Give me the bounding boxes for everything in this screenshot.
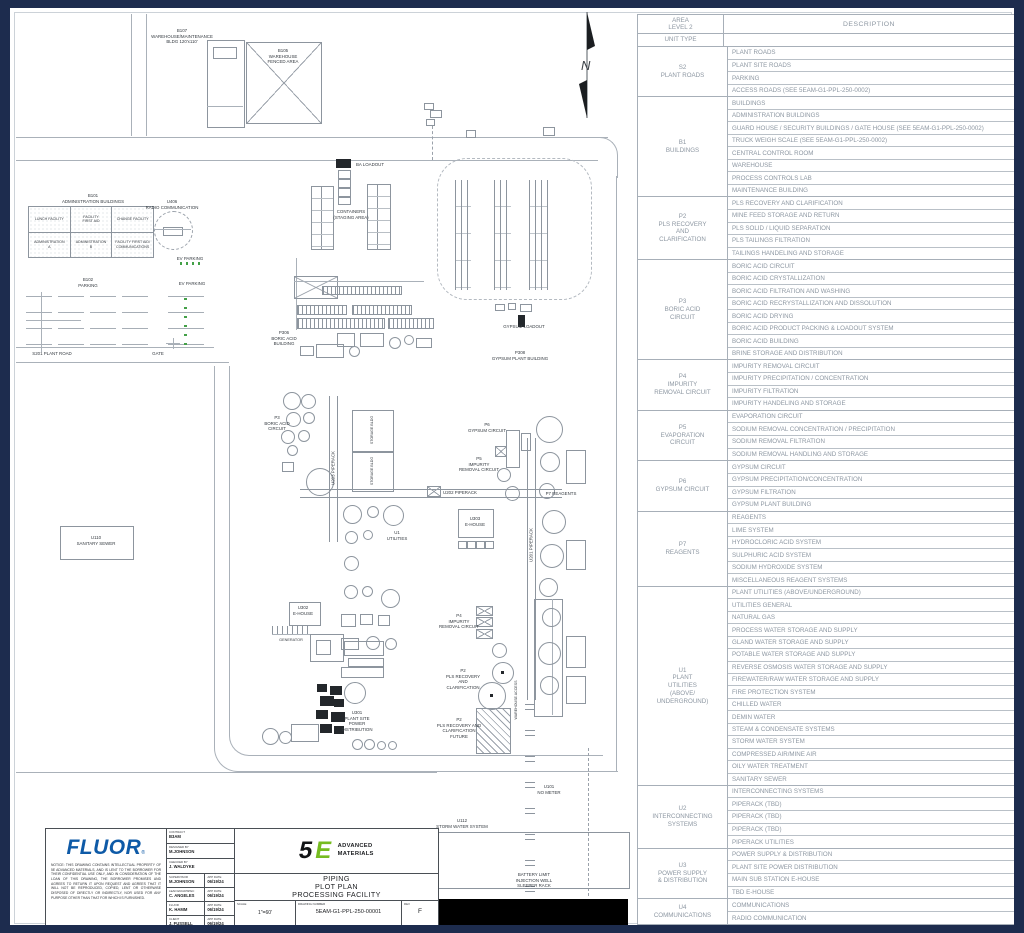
field-value: B3AM — [169, 834, 232, 839]
signoff-value: M.JOHNSON — [169, 879, 202, 884]
titleblock-field: DESIGNED BYM.JOHNSON — [167, 844, 234, 859]
legend-item-column: POWER SUPPLY & DISTRIBUTIONPLANT SITE PO… — [728, 849, 1014, 898]
tank-circle — [383, 505, 404, 526]
outline-box — [508, 303, 516, 310]
legend-group: U4 COMMUNICATIONSCOMMUNICATIONSRADIO COM… — [638, 899, 1014, 924]
signoff-name-cell: SUPERVISORM.JOHNSON — [167, 874, 204, 887]
line — [294, 281, 424, 282]
legend-description-row: GYPSUM CIRCUIT — [728, 461, 1014, 473]
tank-circle — [542, 510, 566, 534]
legend-description-row: MAIN SUB STATION E-HOUSE — [728, 873, 1014, 886]
outline-box — [316, 344, 344, 358]
outline-box — [282, 462, 294, 472]
legend-area-cell: P7 REAGENTS — [638, 512, 728, 586]
drawing-title: PIPING PLOT PLAN PROCESSING FACILITY — [235, 873, 438, 900]
outline-box — [338, 197, 351, 205]
tank-circle — [539, 483, 555, 499]
legend-description-row: PLANT SITE ROADS — [728, 59, 1014, 72]
line — [26, 320, 81, 321]
line — [173, 338, 174, 349]
company-name: ADVANCED MATERIALS — [338, 843, 374, 858]
legend-description-row: SULPHURIC ACID SYSTEM — [728, 548, 1014, 561]
line — [154, 229, 191, 230]
legend-description-row: OILY WATER TREATMENT — [728, 760, 1014, 772]
filled-block — [334, 726, 344, 734]
legend-group: S2 PLANT ROADSPLANT ROADSPLANT SITE ROAD… — [638, 47, 1014, 97]
outline-box — [430, 110, 442, 118]
outline-box — [348, 658, 384, 667]
legend-area-cell: S2 PLANT ROADS — [638, 47, 728, 96]
outline-box — [291, 724, 319, 742]
legend-description-row: TRUCK WEIGH SCALE (SEE 5EAM-G1-PPL-250-0… — [728, 134, 1014, 147]
legend-description-row: FIRE PROTECTION SYSTEM — [728, 685, 1014, 697]
tank-circle — [367, 506, 379, 518]
window-frame-left — [0, 0, 10, 933]
piperack-vertical — [329, 396, 338, 542]
legend-description-row: BORIC ACID BUILDING — [728, 334, 1014, 347]
legend-description-row: FIREWATER/RAW WATER STORAGE AND SUPPLY — [728, 673, 1014, 685]
legend-description-row: DEMIN WATER — [728, 710, 1014, 722]
tank-circle — [344, 682, 366, 704]
outline-box — [338, 188, 351, 197]
legend-group: U2 INTERCONNECTING SYSTEMSINTERCONNECTIN… — [638, 786, 1014, 849]
legend-description-row: IMPURITY HANDELING AND STORAGE — [728, 397, 1014, 410]
logo-5: 5 — [297, 837, 315, 865]
legend-area-cell: U3 POWER SUPPLY & DISTRIBUTION — [638, 849, 728, 898]
drawing-viewer-page: { "north_label": "N", "colors": { "frame… — [0, 0, 1024, 933]
legend-description-row: SODIUM REMOVAL FILTRATION — [728, 435, 1014, 448]
tank-circle — [377, 741, 386, 750]
outline-box — [341, 614, 356, 627]
legend-item-column: IMPURITY REMOVAL CIRCUITIMPURITY PRECIPI… — [728, 360, 1014, 409]
legend-item-column: PLS RECOVERY AND CLARIFICATIONMINE FEED … — [728, 197, 1014, 259]
legend-description-row: PROCESS CONTROLS LAB — [728, 171, 1014, 184]
legend-item-column: BUILDINGSADMINISTRATION BUILDINGSGUARD H… — [728, 97, 1014, 196]
tank-circle — [363, 530, 373, 540]
container-rack — [367, 184, 391, 250]
title-block-fluor-cell: FLUOR® NOTICE: THIS DRAWING CONTAINS INT… — [46, 829, 167, 929]
line — [16, 772, 437, 773]
outline-box — [378, 615, 390, 626]
rev-label: REV — [404, 902, 436, 906]
legend-description-row: PLANT SITE POWER DISTRIBUTION — [728, 860, 1014, 873]
signoff-value: C. ANGELES — [169, 893, 202, 898]
tank-circle — [542, 608, 561, 627]
legend-group: U1 PLANT UTILITIES (ABOVE/ UNDERGROUND)P… — [638, 587, 1014, 786]
equipment-strip — [388, 318, 434, 329]
legend-item-column: GYPSUM CIRCUITGYPSUM PRECIPITATION/CONCE… — [728, 461, 1014, 510]
outline-box — [543, 127, 555, 136]
legend-description-row: SODIUM HYDROXIDE SYSTEM — [728, 561, 1014, 574]
tank-circle — [497, 468, 511, 482]
legend-description-row: ADMINISTRATION BUILDINGS — [728, 109, 1014, 122]
rev-value: F — [404, 908, 436, 915]
legend-description-row: SODIUM REMOVAL HANDLING AND STORAGE — [728, 448, 1014, 461]
dashed-line — [432, 126, 434, 160]
outline-box — [495, 304, 505, 311]
scale-value: 1"=60' — [237, 910, 293, 916]
outline-box — [338, 170, 351, 179]
parking-stripes — [122, 296, 148, 348]
legend-description-row: TBD E-HOUSE — [728, 886, 1014, 899]
legend-description-row: GLAND WATER STORAGE AND SUPPLY — [728, 636, 1014, 648]
admin-room: ADMINISTRATION A — [29, 233, 70, 258]
tank-circle — [345, 531, 358, 544]
filled-block — [490, 694, 493, 697]
tank-circle — [388, 741, 397, 750]
legend-description-row: BRINE STORAGE AND DISTRIBUTION — [728, 347, 1014, 360]
legend-group: P5 EVAPORATION CIRCUITEVAPORATION CIRCUI… — [638, 411, 1014, 461]
container-rack — [311, 186, 334, 250]
tank-circle — [349, 346, 360, 357]
outline-box — [360, 333, 384, 347]
window-frame-bottom — [0, 925, 1024, 933]
outline-box — [300, 346, 314, 356]
legend-description-row: PLS RECOVERY AND CLARIFICATION — [728, 197, 1014, 209]
company-logo: 5E ADVANCED MATERIALS — [235, 829, 438, 873]
parking-stripes — [26, 296, 52, 348]
legend-area-cell: P4 IMPURITY REMOVAL CIRCUIT — [638, 360, 728, 409]
rail-loop-road — [437, 158, 592, 300]
legend-item-column: EVAPORATION CIRCUITSODIUM REMOVAL CONCEN… — [728, 411, 1014, 460]
legend-description-row: POWER SUPPLY & DISTRIBUTION — [728, 849, 1014, 861]
outline-box — [360, 614, 373, 625]
outline-box — [467, 541, 476, 549]
tank-circle — [281, 430, 295, 444]
outline-box — [485, 541, 494, 549]
legend-description-row: GYPSUM PRECIPITATION/CONCENTRATION — [728, 473, 1014, 486]
legend-description-row: BUILDINGS — [728, 97, 1014, 109]
legend-description-row: REAGENTS — [728, 512, 1014, 524]
tank-circle — [539, 578, 558, 597]
legend-description-row: ACCESS ROADS (SEE 5EAM-G1-PPL-250-0002) — [728, 84, 1014, 97]
legend-group: P3 BORIC ACID CIRCUITBORIC ACID CIRCUITB… — [638, 260, 1014, 360]
legend-item-column: PLANT ROADSPLANT SITE ROADSPARKINGACCESS… — [728, 47, 1014, 96]
tank-circle — [540, 452, 560, 472]
window-frame-top — [0, 0, 1024, 8]
legend-description-row: IMPURITY FILTRATION — [728, 385, 1014, 398]
legend-header-unit-type: UNIT TYPE — [638, 34, 724, 46]
legend-description-row: BORIC ACID PRODUCT PACKING & LOADOUT SYS… — [728, 322, 1014, 335]
legend-description-row: EVAPORATION CIRCUIT — [728, 411, 1014, 423]
legend-area-cell: P6 GYPSUM CIRCUIT — [638, 461, 728, 510]
outline-box — [60, 526, 134, 560]
filled-block — [501, 671, 504, 674]
legend-header-description: DESCRIPTION — [724, 15, 1014, 33]
signoff-value: K. HAMM — [169, 907, 202, 912]
outline-box — [344, 641, 384, 656]
road-curve — [598, 137, 618, 178]
legend-description-row: SODIUM REMOVAL CONCENTRATION / PRECIPITA… — [728, 422, 1014, 435]
titleblock-signoff: LEAD ENGR/SPECC. ANGELESAPP DATE06/19/24 — [167, 888, 234, 902]
legend-description-row: UTILITIES GENERAL — [728, 598, 1014, 610]
legend-item-column: REAGENTSLIME SYSTEMHYDROCLORIC ACID SYST… — [728, 512, 1014, 586]
tank-circle — [283, 392, 301, 410]
tank-circle — [343, 505, 362, 524]
legend-description-row: PLANT ROADS — [728, 47, 1014, 59]
outline-box — [506, 430, 520, 468]
equipment-strip — [297, 305, 347, 315]
equipment-strip — [322, 286, 402, 295]
legend-description-row: CENTRAL CONTROL ROOM — [728, 146, 1014, 159]
legend-description-row: COMPRESSED AIR/MINE AIR — [728, 748, 1014, 760]
date-value: 06/19/24 — [207, 907, 232, 912]
outline-box — [458, 509, 494, 538]
field-value: M.JOHNSON — [169, 849, 232, 854]
legend-area-cell: U2 INTERCONNECTING SYSTEMS — [638, 786, 728, 848]
legend-description-row: NATURAL GAS — [728, 611, 1014, 623]
title-block-center: 5E ADVANCED MATERIALS PIPING PLOT PLAN P… — [235, 829, 438, 929]
field-value: J. WALDYKE — [169, 864, 232, 869]
legend-description-row: BORIC ACID CIRCUIT — [728, 260, 1014, 272]
admin-room: ADMINISTRATION B — [70, 233, 112, 258]
outline-box — [289, 602, 321, 626]
legend-header-empty — [724, 34, 1014, 46]
legend-group: P6 GYPSUM CIRCUITGYPSUM CIRCUITGYPSUM PR… — [638, 461, 1014, 511]
tank-circle — [262, 728, 279, 745]
filled-block — [518, 315, 525, 327]
legend-description-row: PLS SOLID / LIQUID SEPARATION — [728, 222, 1014, 235]
line — [131, 14, 132, 136]
ev-parking-ticks — [184, 298, 187, 348]
outline-box — [213, 47, 237, 59]
crossed-box — [476, 617, 493, 627]
date-value: 06/19/24 — [207, 893, 232, 898]
legend-description-row: GUARD HOUSE / SECURITY BUILDINGS / GATE … — [728, 121, 1014, 134]
filled-block — [316, 710, 328, 719]
outline-box — [566, 540, 586, 570]
equipment-strip — [297, 318, 385, 329]
drawing-number-label: DRAWING NUMBER — [298, 902, 399, 906]
outline-box — [426, 119, 435, 126]
admin-room: LUNCH FACILITY — [29, 207, 70, 232]
filled-block — [336, 159, 351, 168]
outline-box — [521, 433, 531, 451]
outline-box — [338, 179, 351, 188]
legend-description-row: PLS TAILINGS FILTRATION — [728, 234, 1014, 247]
area-legend-table: AREA LEVEL 2 DESCRIPTION UNIT TYPE S2 PL… — [637, 14, 1015, 925]
legend-description-row: POTABLE WATER STORAGE AND SUPPLY — [728, 648, 1014, 660]
legend-item-column: BORIC ACID CIRCUITBORIC ACID CRYSTALLIZA… — [728, 260, 1014, 359]
tank-circle — [352, 739, 363, 750]
tank-circle — [344, 585, 358, 599]
legend-area-cell: P5 EVAPORATION CIRCUIT — [638, 411, 728, 460]
admin-room: CHANGE FACILITY — [111, 207, 153, 232]
parking-stripes — [58, 296, 84, 348]
legend-description-row: PIPERACK (TBD) — [728, 823, 1014, 836]
ev-parking-ticks — [180, 262, 204, 265]
line — [146, 14, 147, 136]
tank-circle — [492, 643, 507, 658]
line — [272, 634, 312, 635]
tank-circle — [364, 739, 375, 750]
legend-description-row: INTERCONNECTING SYSTEMS — [728, 786, 1014, 798]
tank-circle — [404, 335, 414, 345]
legend-header-row: AREA LEVEL 2 DESCRIPTION — [638, 15, 1014, 34]
crossed-box — [476, 629, 493, 639]
outline-box — [466, 130, 476, 138]
signoff-date-cell: APP DATE06/19/24 — [204, 902, 234, 915]
scale-label: SCALE — [237, 902, 293, 906]
legend-area-cell: U4 COMMUNICATIONS — [638, 899, 728, 924]
outline-box — [566, 450, 586, 484]
legend-item-column: COMMUNICATIONSRADIO COMMUNICATION — [728, 899, 1014, 924]
tank-circle — [362, 586, 373, 597]
filled-block — [320, 724, 332, 733]
window-frame-right — [1014, 0, 1024, 933]
tank-circle — [306, 468, 334, 496]
legend-groups: S2 PLANT ROADSPLANT ROADSPLANT SITE ROAD… — [638, 47, 1014, 924]
signoff-date-cell: APP DATE06/19/24 — [204, 888, 234, 901]
legend-area-cell: P2 PLS RECOVERY AND CLARIFICATION — [638, 197, 728, 259]
outline-box — [438, 832, 630, 889]
legend-description-row: WAREHOUSE — [728, 159, 1014, 172]
legend-header-area: AREA LEVEL 2 — [638, 15, 724, 33]
titleblock-signoff: FLUORK. HAMMAPP DATE06/19/24 — [167, 902, 234, 916]
outline-box — [352, 410, 394, 452]
legend-item-column: INTERCONNECTING SYSTEMSPIPERACK (TBD)PIP… — [728, 786, 1014, 848]
tank-circle — [540, 676, 559, 695]
legend-description-row: LIME SYSTEM — [728, 523, 1014, 536]
crossed-box — [427, 486, 441, 497]
redaction-block — [438, 899, 628, 928]
legend-description-row: MINE FEED STORAGE AND RETURN — [728, 209, 1014, 222]
titleblock-signoff: SUPERVISORM.JOHNSONAPP DATE06/19/24 — [167, 874, 234, 888]
crossed-box — [476, 606, 493, 616]
legend-description-row: MISCELLANEOUS REAGENT SYSTEMS — [728, 573, 1014, 586]
tank-circle — [505, 486, 520, 501]
legend-description-row: RADIO COMMUNICATION — [728, 911, 1014, 924]
outline-box — [316, 640, 331, 655]
legend-description-row: REVERSE OSMOSIS WATER STORAGE AND SUPPLY — [728, 661, 1014, 673]
outline-box — [424, 103, 434, 110]
tank-circle — [381, 589, 400, 608]
legend-description-row: HYDROCLORIC ACID SYSTEM — [728, 536, 1014, 549]
legend-group: U3 POWER SUPPLY & DISTRIBUTIONPOWER SUPP… — [638, 849, 1014, 899]
tank-circle — [540, 544, 564, 568]
tank-circle — [287, 445, 298, 456]
legend-description-row: BORIC ACID FILTRATION AND WASHING — [728, 284, 1014, 297]
signoff-name-cell: LEAD ENGR/SPECC. ANGELES — [167, 888, 204, 901]
tank-circle — [538, 642, 561, 665]
legend-description-row: BORIC ACID RECRYSTALLIZATION AND DISSOLU… — [728, 297, 1014, 310]
legend-description-row: COMMUNICATIONS — [728, 899, 1014, 911]
tank-circle — [286, 412, 301, 427]
tank-circle — [301, 394, 316, 409]
legend-description-row: BORIC ACID DRYING — [728, 309, 1014, 322]
legend-description-row: GYPSUM PLANT BUILDING — [728, 498, 1014, 511]
legend-description-row: IMPURITY PRECIPITATION / CONCENTRATION — [728, 372, 1014, 385]
legend-description-row: CHILLED WATER — [728, 698, 1014, 710]
outline-box — [352, 452, 394, 492]
line — [16, 137, 608, 138]
legend-description-row: PIPERACK (TBD) — [728, 810, 1014, 823]
registered-mark: ® — [141, 850, 145, 856]
tank-circle — [298, 430, 310, 442]
outline-box — [416, 338, 432, 348]
admin-room-row: ADMINISTRATION AADMINISTRATION BFACILITY… — [29, 232, 153, 258]
legend-group: P4 IMPURITY REMOVAL CIRCUITIMPURITY REMO… — [638, 360, 1014, 410]
legend-description-row: PLANT UTILITIES (ABOVE/UNDERGROUND) — [728, 587, 1014, 598]
filled-block — [320, 696, 334, 706]
north-label: N — [581, 58, 591, 73]
filled-block — [330, 686, 342, 695]
filled-block — [334, 699, 344, 707]
crossed-box — [246, 42, 322, 124]
legend-description-row: IMPURITY REMOVAL CIRCUIT — [728, 360, 1014, 372]
logo-e: E — [313, 837, 334, 865]
legend-group: B1 BUILDINGSBUILDINGSADMINISTRATION BUIL… — [638, 97, 1014, 197]
title-block: FLUOR® NOTICE: THIS DRAWING CONTAINS INT… — [45, 828, 439, 930]
legend-description-row: STORM WATER SYSTEM — [728, 735, 1014, 747]
legend-description-row: SANITARY SEWER — [728, 773, 1014, 785]
signoff-date-cell: APP DATE06/19/24 — [204, 874, 234, 887]
legend-description-row: PIPERACK (TBD) — [728, 797, 1014, 810]
date-value: 06/19/24 — [207, 879, 232, 884]
legend-description-row: PIPERACK UTILITIES — [728, 835, 1014, 848]
title-block-signoffs: CONTRACTB3AMDESIGNED BYM.JOHNSONCHECKED … — [167, 829, 235, 929]
legend-description-row: STEAM & CONDENSATE SYSTEMS — [728, 723, 1014, 735]
line — [41, 292, 42, 352]
filled-block — [317, 684, 327, 692]
tank-circle — [303, 412, 315, 424]
outline-box — [520, 304, 532, 312]
parking-stripes — [90, 296, 116, 348]
legend-group: P7 REAGENTSREAGENTSLIME SYSTEMHYDROCLORI… — [638, 512, 1014, 587]
outline-box — [341, 667, 384, 678]
admin-room-row: LUNCH FACILITYFACILITY FIRST AIDCHANGE F… — [29, 207, 153, 232]
outline-box — [566, 636, 586, 668]
signoff-name-cell: FLUORK. HAMM — [167, 902, 204, 915]
legend-item-column: PLANT UTILITIES (ABOVE/UNDERGROUND)UTILI… — [728, 587, 1014, 785]
north-arrow-icon: N — [574, 12, 600, 118]
line — [207, 106, 243, 107]
outline-box — [566, 676, 586, 704]
legend-subheader-row: UNIT TYPE — [638, 34, 1014, 47]
legend-description-row: PROCESS WATER STORAGE AND SUPPLY — [728, 623, 1014, 635]
outline-box — [476, 541, 485, 549]
administration-building: LUNCH FACILITYFACILITY FIRST AIDCHANGE F… — [28, 206, 154, 258]
notice-text: NOTICE: THIS DRAWING CONTAINS INTELLECTU… — [46, 860, 166, 900]
legend-area-cell: P3 BORIC ACID CIRCUIT — [638, 260, 728, 359]
admin-room: FACILITY FIRST AID/ COMMUNICATIONS — [111, 233, 153, 258]
legend-description-row: MAINTENANCE BUILDING — [728, 184, 1014, 197]
legend-area-cell: B1 BUILDINGS — [638, 97, 728, 196]
tank-circle — [536, 416, 563, 443]
titleblock-field: CHECKED BYJ. WALDYKE — [167, 859, 234, 874]
equipment-strip — [352, 305, 412, 315]
filled-block — [331, 712, 345, 722]
tick-row — [272, 626, 312, 634]
legend-description-row: GYPSUM FILTRATION — [728, 486, 1014, 499]
tank-circle — [389, 337, 401, 349]
legend-description-row: TAILINGS HANDELING AND STORAGE — [728, 247, 1014, 260]
admin-room: FACILITY FIRST AID — [70, 207, 112, 232]
legend-description-row: PARKING — [728, 71, 1014, 84]
hatched-future-area — [476, 708, 511, 754]
outline-box — [458, 541, 467, 549]
crossed-box — [495, 446, 507, 457]
tank-circle — [385, 638, 397, 650]
titleblock-field: CONTRACTB3AM — [167, 829, 234, 844]
fluor-logo: FLUOR® — [66, 836, 145, 860]
legend-area-cell: U1 PLANT UTILITIES (ABOVE/ UNDERGROUND) — [638, 587, 728, 785]
tank-circle — [344, 556, 359, 571]
legend-group: P2 PLS RECOVERY AND CLARIFICATIONPLS REC… — [638, 197, 1014, 260]
legend-description-row: BORIC ACID CRYSTALLIZATION — [728, 272, 1014, 285]
drawing-number-value: 5EAM-G1-PPL-250-00001 — [298, 909, 399, 915]
line — [16, 362, 229, 363]
